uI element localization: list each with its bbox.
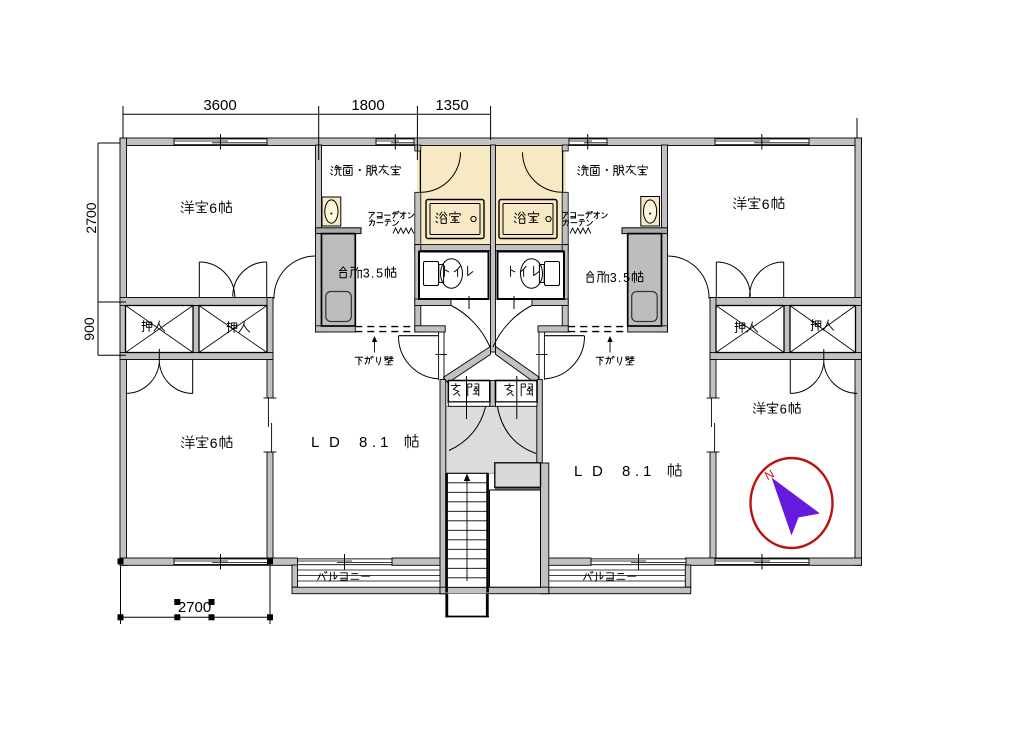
svg-text:6: 6 xyxy=(210,435,218,451)
svg-text:3: 3 xyxy=(610,271,617,285)
svg-text:6: 6 xyxy=(209,200,217,216)
svg-text:.: . xyxy=(618,271,621,285)
svg-text:L: L xyxy=(574,463,582,480)
svg-text:1: 1 xyxy=(643,463,651,480)
svg-text:1800: 1800 xyxy=(351,97,384,114)
svg-text:3600: 3600 xyxy=(203,97,236,114)
svg-text:5: 5 xyxy=(623,271,630,285)
svg-text:2700: 2700 xyxy=(83,202,99,233)
svg-text:3: 3 xyxy=(363,267,370,281)
svg-text:D: D xyxy=(592,463,603,480)
svg-text:1350: 1350 xyxy=(435,97,468,114)
svg-text:L: L xyxy=(311,434,319,451)
svg-text:5: 5 xyxy=(376,267,383,281)
svg-text:D: D xyxy=(329,434,340,451)
svg-text:1: 1 xyxy=(380,434,388,451)
svg-text:8: 8 xyxy=(359,434,367,451)
svg-text:8: 8 xyxy=(622,463,630,480)
svg-text:6: 6 xyxy=(780,402,787,417)
svg-text:900: 900 xyxy=(81,317,97,341)
svg-text:2700: 2700 xyxy=(178,599,211,616)
svg-text:.: . xyxy=(635,463,639,480)
svg-text:6: 6 xyxy=(762,196,770,212)
svg-text:.: . xyxy=(372,434,376,451)
svg-text:.: . xyxy=(371,267,374,281)
